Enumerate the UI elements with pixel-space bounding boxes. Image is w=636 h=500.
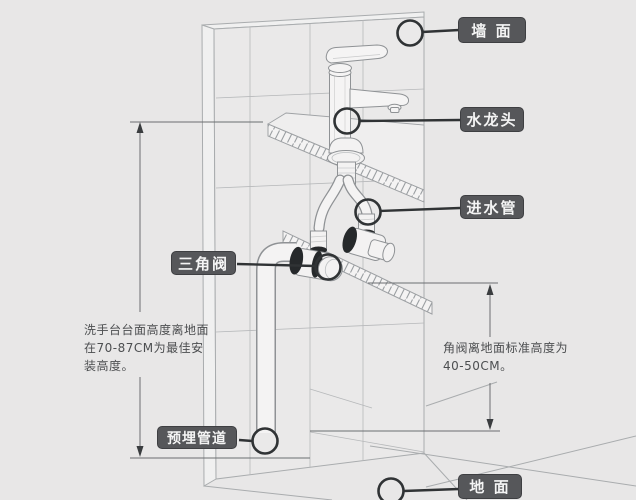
callout-circle-floor xyxy=(379,479,404,500)
label-angle-valve: 三角阀 xyxy=(171,251,236,275)
note-counter-height: 洗手台台面高度离地面在70-87CM为最佳安装高度。 xyxy=(84,321,214,375)
label-inlet-pipe: 进水管 xyxy=(460,195,524,219)
label-floor: 地 面 xyxy=(458,474,522,499)
diagram-line-art xyxy=(0,0,636,500)
label-wall: 墙 面 xyxy=(458,17,526,43)
note-valve-height: 角阀离地面标准高度为40-50CM。 xyxy=(443,339,577,375)
label-embedded-pipe: 预埋管道 xyxy=(157,426,237,449)
installation-diagram: 墙 面 水龙头 进水管 三角阀 预埋管道 地 面 洗手台台面高度离地面在70-8… xyxy=(0,0,636,500)
label-faucet: 水龙头 xyxy=(460,107,524,132)
